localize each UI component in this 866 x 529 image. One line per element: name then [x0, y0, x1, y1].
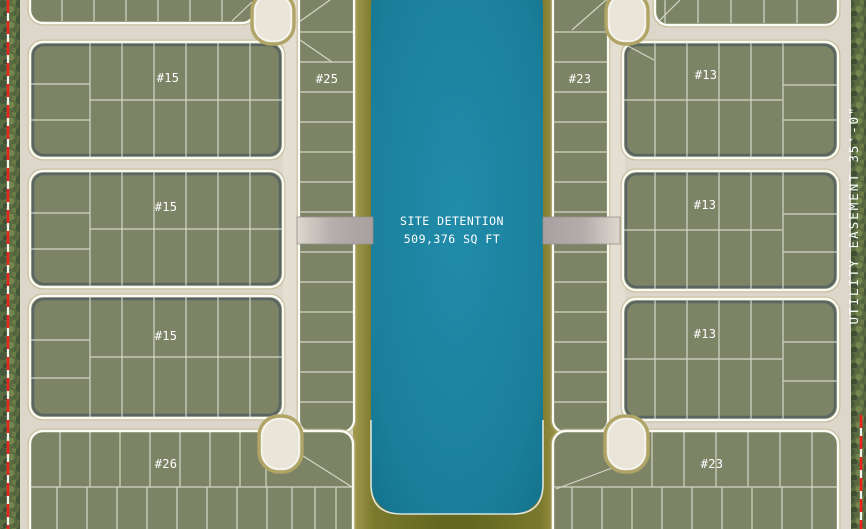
utility-easement-label: UTILITY EASEMENT 35'-0"	[846, 105, 861, 324]
block-26: #26	[30, 431, 353, 529]
road-stub-top-left	[252, 0, 294, 44]
strip-block-25	[299, 0, 354, 432]
stub-curb	[606, 0, 648, 44]
road-stub-bottom-left	[259, 416, 302, 472]
site-plan-screenshot: #15 #15 #15 #26 #13 #13	[0, 0, 866, 529]
block-body	[30, 431, 353, 529]
block-15-3: #15	[30, 296, 283, 418]
road-stub-bottom-right	[605, 416, 648, 472]
block-top-left-partial	[30, 0, 255, 23]
block-body	[553, 431, 838, 529]
block-15-2: #15	[30, 171, 283, 287]
strip-25-body	[299, 0, 354, 432]
block-13-2: #13	[623, 171, 838, 290]
vegetation-strip-left	[0, 0, 20, 529]
strip-23-top-label: #23	[569, 72, 592, 86]
block-label: #23	[701, 457, 724, 471]
block-label: #15	[157, 71, 180, 85]
strip-25-label: #25	[316, 72, 339, 86]
block-label: #13	[695, 68, 718, 82]
access-stub-left	[297, 217, 373, 244]
stub-curb	[259, 416, 302, 472]
block-label: #15	[155, 329, 178, 343]
block-label: #26	[155, 457, 178, 471]
stub-curb	[605, 416, 648, 472]
block-body	[655, 0, 838, 25]
strip-block-23-top	[553, 0, 608, 432]
access-stub-right	[543, 217, 620, 244]
road-stub-top-right	[606, 0, 648, 44]
detention-basin	[353, 0, 561, 529]
block-body	[30, 0, 255, 23]
block-23-bottom: #23	[553, 431, 838, 529]
detention-label-line2: 509,376 SQ FT	[404, 232, 501, 246]
block-label: #15	[155, 200, 178, 214]
block-13-1: #13	[623, 42, 838, 158]
block-13-3: #13	[623, 299, 838, 420]
block-top-right-partial	[655, 0, 838, 25]
block-label: #13	[694, 327, 717, 341]
detention-water	[371, 0, 543, 514]
detention-label-line1: SITE DETENTION	[400, 214, 504, 228]
stub-curb	[252, 0, 294, 44]
block-label: #13	[694, 198, 717, 212]
site-plan-map: #15 #15 #15 #26 #13 #13	[0, 0, 866, 529]
strip-23-body	[553, 0, 608, 432]
block-15-1: #15	[30, 42, 283, 158]
